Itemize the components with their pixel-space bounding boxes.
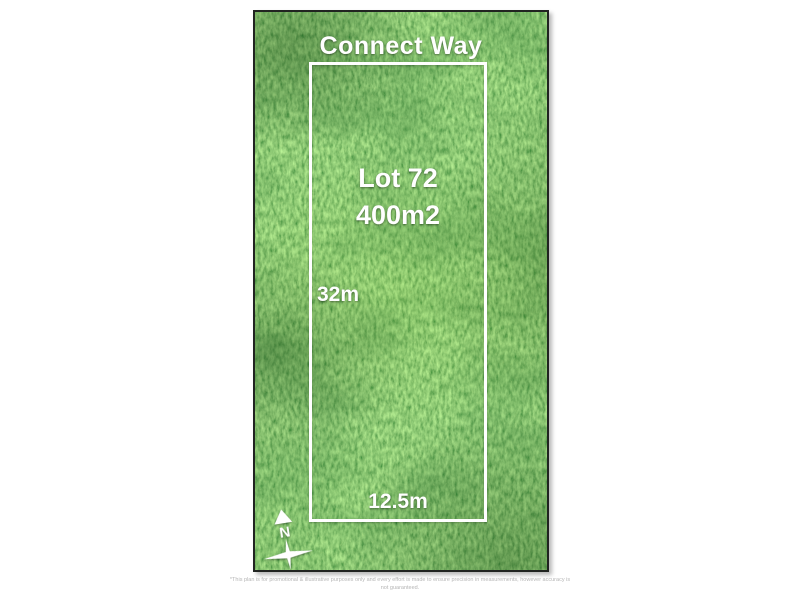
disclaimer-line-1: *This plan is for promotional & illustra…: [0, 576, 800, 584]
disclaimer-text: *This plan is for promotional & illustra…: [0, 576, 800, 592]
frontage-dimension-label: 12.5m: [309, 490, 487, 514]
page-background: Connect Way Lot 72 400m2 32m 12.5m N *Th…: [0, 0, 800, 600]
north-arrow-icon: N: [257, 508, 315, 572]
lot-plan-photo: Connect Way Lot 72 400m2 32m 12.5m N: [253, 10, 549, 572]
north-letter: N: [278, 523, 291, 541]
lot-number-label: Lot 72: [309, 160, 487, 197]
depth-dimension-label: 32m: [317, 283, 359, 307]
disclaimer-line-2: not guaranteed.: [0, 584, 800, 592]
lot-info-block: Lot 72 400m2: [309, 160, 487, 234]
lot-area-label: 400m2: [309, 197, 487, 234]
street-name-label: Connect Way: [255, 32, 547, 61]
